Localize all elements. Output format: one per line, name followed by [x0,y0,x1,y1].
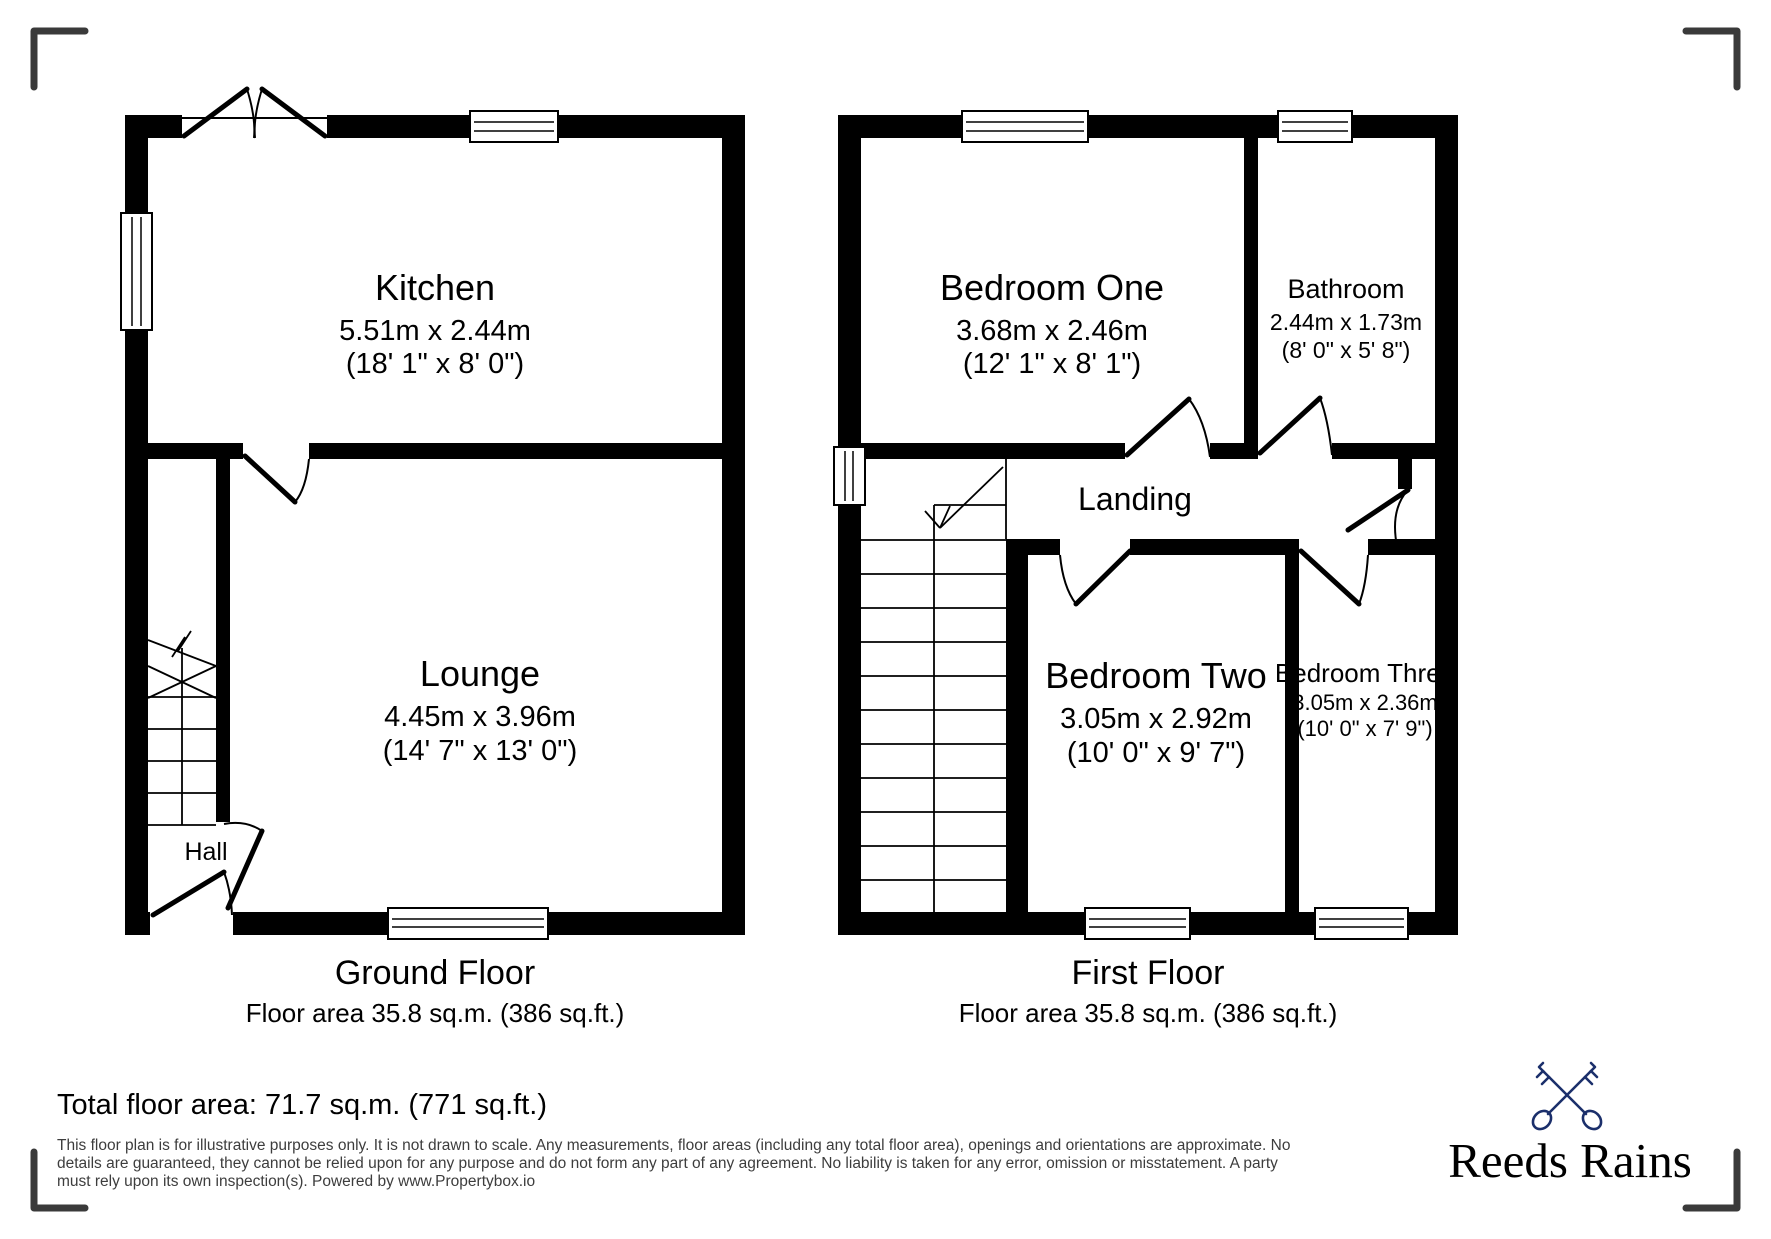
lounge-label: Lounge 4.45m x 3.96m (14' 7" x 13' 0") [383,653,577,767]
bedroom-three-window [1315,908,1408,939]
bedroom-one-metric: 3.68m x 2.46m [956,315,1148,347]
bedroom-three-door [1301,551,1368,604]
ground-floor-stairs [148,631,216,825]
kitchen-label: Kitchen 5.51m x 2.44m (18' 1" x 8' 0") [339,267,531,380]
footer: Total floor area: 71.7 sq.m. (771 sq.ft.… [57,1089,1290,1190]
entrance-door [153,872,232,915]
brand-logo: Reeds Rains [1448,1063,1692,1188]
bathroom-window [1278,111,1352,142]
kitchen-window-left [121,213,152,330]
first-floor-plan: Bedroom One 3.68m x 2.46m (12' 1" x 8' 1… [834,111,1458,1028]
kitchen-window-top [470,111,558,142]
lounge-imperial: (14' 7" x 13' 0") [383,735,577,767]
bathroom-imperial: (8' 0" x 5' 8") [1282,337,1411,363]
bathroom-door [1260,398,1332,455]
lounge-name: Lounge [420,653,540,694]
crop-corner-mark-top-left [34,31,85,87]
crossed-keys-icon [1529,1063,1604,1133]
bedroom-two-metric: 3.05m x 2.92m [1060,703,1252,735]
kitchen-name: Kitchen [375,267,495,308]
bedroom-one-name: Bedroom One [940,267,1164,308]
bedroom-three-label: Bedroom Three 3.05m x 2.36m (10' 0" x 7'… [1275,658,1455,741]
bedroom-two-imperial: (10' 0" x 9' 7") [1067,737,1245,769]
kitchen-metric: 5.51m x 2.44m [339,315,531,347]
disclaimer-line-1: This floor plan is for illustrative purp… [57,1137,1290,1154]
bedroom-one-imperial: (12' 1" x 8' 1") [963,348,1141,380]
landing-window-left [834,447,865,505]
bedroom-three-imperial: (10' 0" x 7' 9") [1297,716,1432,741]
ground-floor-walls [125,115,745,935]
total-floor-area: Total floor area: 71.7 sq.m. (771 sq.ft.… [57,1089,547,1121]
first-floor-stairs [861,459,1006,912]
bedroom-three-metric: 3.05m x 2.36m [1292,690,1438,715]
bathroom-name: Bathroom [1287,274,1404,304]
bathroom-label: Bathroom 2.44m x 1.73m (8' 0" x 5' 8") [1270,274,1422,363]
floorplan-page: Kitchen 5.51m x 2.44m (18' 1" x 8' 0") L… [0,0,1771,1239]
bedroom-two-window [1085,908,1190,939]
ground-floor-title: Ground Floor [335,954,535,992]
ground-floor-area: Floor area 35.8 sq.m. (386 sq.ft.) [246,998,625,1028]
bedroom-one-window [962,111,1088,142]
crop-corner-mark-top-right [1686,31,1737,87]
kitchen-imperial: (18' 1" x 8' 0") [346,348,524,380]
bedroom-two-name: Bedroom Two [1045,655,1266,696]
first-floor-title: First Floor [1072,954,1225,992]
disclaimer-line-2: details are guaranteed, they cannot be r… [57,1155,1278,1172]
landing-label: Landing [1078,481,1192,517]
lounge-metric: 4.45m x 3.96m [384,701,576,733]
bedroom-one-door [1127,399,1210,457]
brand-name: Reeds Rains [1448,1133,1692,1188]
lounge-window-bottom [388,908,548,939]
kitchen-lounge-door [245,456,309,502]
bedroom-three-name: Bedroom Three [1275,658,1455,688]
bedroom-one-label: Bedroom One 3.68m x 2.46m (12' 1" x 8' 1… [940,267,1164,380]
kitchen-french-doors [182,89,327,138]
hall-label: Hall [184,838,227,866]
first-floor-area: Floor area 35.8 sq.m. (386 sq.ft.) [959,998,1338,1028]
bathroom-metric: 2.44m x 1.73m [1270,309,1422,335]
disclaimer-line-3: must rely upon its own inspection(s). Po… [57,1173,535,1190]
floorplan-canvas: Kitchen 5.51m x 2.44m (18' 1" x 8' 0") L… [0,0,1771,1239]
bedroom-two-label: Bedroom Two 3.05m x 2.92m (10' 0" x 9' 7… [1045,655,1266,769]
bedroom-two-door [1060,551,1130,604]
ground-floor-plan: Kitchen 5.51m x 2.44m (18' 1" x 8' 0") L… [121,89,745,1028]
crop-corner-mark-bottom-right [1686,1152,1737,1208]
